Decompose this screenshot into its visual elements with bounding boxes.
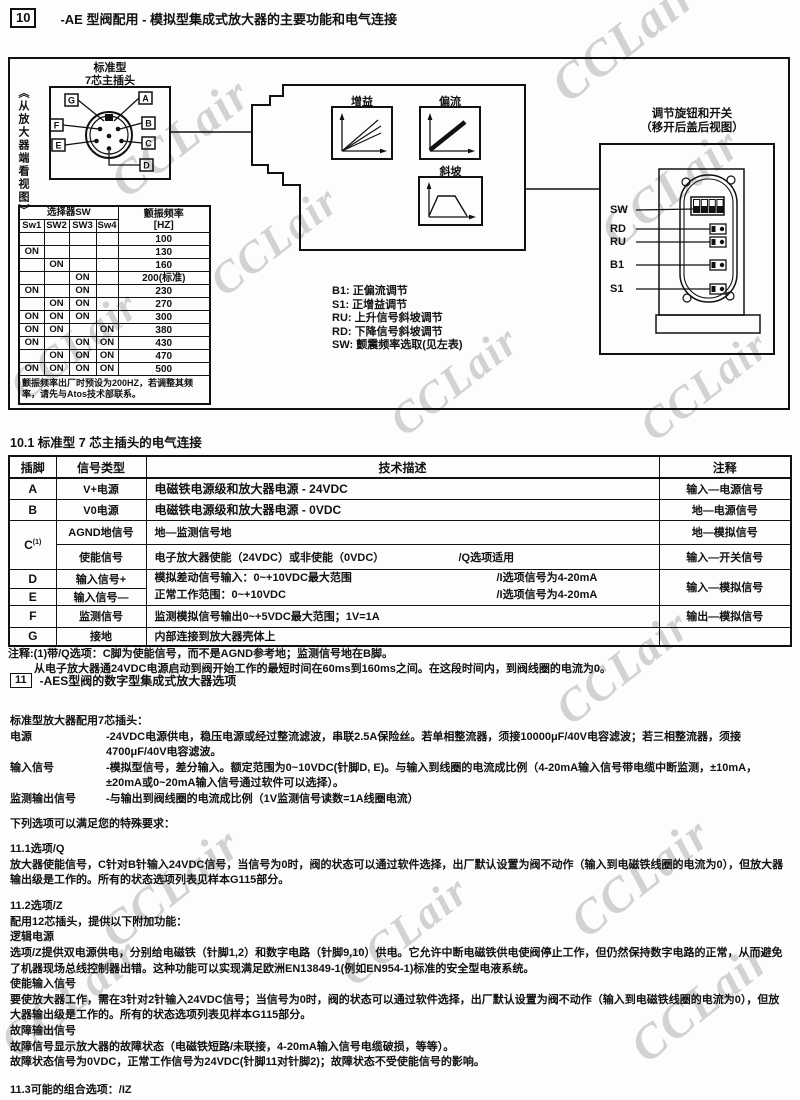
pin-label: D — [143, 161, 150, 171]
legend-line: SW: 颤震频率选取(见左表) — [332, 339, 463, 353]
screw — [683, 294, 691, 302]
logic-supply-title: 逻辑电源 — [10, 930, 790, 946]
option-z-heading: 11.2选项/Z — [10, 899, 790, 915]
table-row: 100 — [19, 233, 210, 246]
section-number-box: 10 — [10, 8, 36, 28]
spec-row: 电源 -24VDC电源供电，稳压电源或经过整流滤波，串联2.5A保险丝。若单相整… — [10, 730, 790, 761]
table-row: ON160 — [19, 259, 210, 272]
functional-diagram: G F E A B C D — [8, 57, 790, 410]
fault-output-body: 故障信号显示放大器的故障状态（电磁铁短路/未联接，4-20mA输入信号电缆破损，… — [10, 1040, 790, 1056]
gain-graph-label: 增益 — [332, 93, 392, 109]
pin-label: G — [68, 96, 75, 106]
table-row: A V+电源 电磁铁电源级和放大器电源 - 24VDC 输入—电源信号 — [9, 478, 791, 499]
option-q-heading: 11.1选项/Q — [10, 842, 790, 858]
connector-key-notch — [105, 114, 113, 121]
table-row: ONONON380 — [19, 324, 210, 337]
enable-input-body: 要使放大器工作，需在3针对2针输入24VDC信号；当信号为0时，阀的状态可以通过… — [10, 993, 790, 1024]
option-q-body: 放大器使能信号，C针对B针输入24VDC信号，当信号为0时，阀的状态可以通过软件… — [10, 858, 790, 889]
bias-graph-label: 偏流 — [420, 93, 480, 109]
adjustment-legend: B1: 正偏流调节 S1: 正增益调节 RU: 上升信号斜坡调节 RD: 下降信… — [332, 285, 463, 353]
table-row: F 监测信号 监测模拟信号输出0~+5VDC最大范围；1V=1A 输出—模拟信号 — [9, 605, 791, 627]
table-row: ON130 — [19, 246, 210, 259]
view-direction-label: 《从放大器端看视图》 — [15, 87, 31, 217]
section-10-header: 10 -AE 型阀配用 - 模拟型集成式放大器的主要功能和电气连接 — [10, 8, 397, 28]
label-pointer-lines — [636, 209, 710, 289]
fault-output-title: 故障输出信号 — [10, 1024, 790, 1040]
knob-label-rd: RD — [610, 223, 636, 235]
table-row: ONON270 — [19, 298, 210, 311]
legend-line: RU: 上升信号斜坡调节 — [332, 312, 463, 326]
section-11-header: 11 -AES型阀的数字型集成式放大器选项 — [10, 672, 236, 689]
knob-panel-title: 调节旋钮和开关 （移开后盖后视图） — [606, 107, 778, 136]
table-row: B V0电源 电磁铁电源级和放大器电源 - 0VDC 地—电源信号 — [9, 499, 791, 520]
table-row: G 接地 内部连接到放大器壳体上 — [9, 627, 791, 646]
gain-graph — [332, 107, 392, 159]
table-row: ONONONON500 — [19, 363, 210, 376]
table-row: ON200(标准) — [19, 272, 210, 285]
spec-row: 输入信号 -模拟型信号，差分输入。额定范围为0~10VDC(针脚D, E)。与输… — [10, 761, 790, 792]
frequency-header: 颤振频率 [HZ] — [118, 206, 210, 233]
options-intro: 下列选项可以满足您的特殊要求： — [10, 817, 790, 833]
option-z-intro: 配用12芯插头，提供以下附加功能： — [10, 915, 790, 931]
plug-label: 标准型 7芯主插头 — [50, 62, 170, 88]
intro-line: 标准型放大器配用7芯插头： — [10, 714, 790, 730]
connector-pin-dots — [94, 127, 124, 151]
trimmers — [710, 224, 726, 294]
table-header-row: 插脚 信号类型 技术描述 注释 — [9, 456, 791, 478]
document-page: CCLair CCLair CCLair CCLair CCLair CCLai… — [0, 0, 800, 1100]
section-title: -AES型阀的数字型集成式放大器选项 — [40, 672, 237, 689]
bias-graph — [420, 107, 480, 159]
knob-panel-drawing — [600, 144, 774, 354]
pin-label: B — [145, 119, 152, 129]
legend-line: B1: 正偏流调节 — [332, 285, 463, 299]
spec-row: 监测输出信号 -与输出到阀线圈的电流成比例（1V监测信号读数=1A线圈电流） — [10, 792, 790, 808]
knob-label-sw: SW — [610, 204, 636, 216]
table-row: ONONON300 — [19, 311, 210, 324]
ramp-graph — [419, 177, 482, 225]
table-row: ONON230 — [19, 285, 210, 298]
amplifier-body-outline — [252, 85, 525, 250]
section-title: -AE 型阀配用 - 模拟型集成式放大器的主要功能和电气连接 — [60, 9, 397, 28]
dither-frequency-table: 选择器SW 颤振频率 [HZ] Sw1 SW2 SW3 Sw4 100 ON13… — [18, 205, 211, 405]
table-row: ONONON430 — [19, 337, 210, 350]
pin-label: C — [145, 139, 152, 149]
table-row: 使能信号 电子放大器使能（24VDC）或非使能（0VDC）/Q选项适用 输入—开… — [9, 544, 791, 569]
pin-label: E — [55, 141, 61, 151]
section-10-1-title: 10.1 标准型 7 芯主插头的电气连接 — [10, 432, 202, 451]
legend-line: S1: 正增益调节 — [332, 299, 463, 313]
enable-input-title: 使能输入信号 — [10, 977, 790, 993]
legend-line: RD: 下降信号斜坡调节 — [332, 326, 463, 340]
pin-letter-boxes — [50, 92, 155, 171]
combo-options-line: 11.3可能的组合选项：/IZ — [10, 1083, 790, 1099]
sw-table-note: 颤振频率出厂时预设为200HZ，若调整其频率，请先与Atos技术部联系。 — [19, 376, 210, 404]
section-11-body: 标准型放大器配用7芯插头： 电源 -24VDC电源供电，稳压电源或经过整流滤波，… — [10, 714, 790, 1098]
logic-supply-body: 选项/Z提供双电源供电，分别给电磁铁（针脚1,2）和数字电路（针脚9,10）供电… — [10, 946, 790, 977]
pin-label: A — [142, 94, 149, 104]
knob-label-ru: RU — [610, 236, 636, 248]
sw-group-header: 选择器SW — [19, 206, 118, 220]
section-number-box: 11 — [10, 673, 32, 689]
table-row: C(1) AGND地信号 地—监测信号地 地—模拟信号 — [9, 520, 791, 544]
table-row: ONONON470 — [19, 350, 210, 363]
knob-label-s1: S1 — [610, 283, 636, 295]
pin-connections-table: 插脚 信号类型 技术描述 注释 A V+电源 电磁铁电源级和放大器电源 - 24… — [8, 455, 792, 647]
knob-label-b1: B1 — [610, 259, 636, 271]
ramp-graph-label: 斜坡 — [419, 163, 482, 179]
screw — [727, 176, 735, 184]
table-row: D 输入信号+ 模拟差动信号输入：0~+10VDC最大范围/I选项信号为4-20… — [9, 569, 791, 588]
pin-label: F — [54, 121, 60, 131]
fault-output-body: 故障状态信号为0VDC，正常工作信号为24VDC(针脚11对针脚2)；故障状态不… — [10, 1055, 790, 1071]
footnote-line: 注释:(1)带/Q选项：C脚为使能信号，而不是AGND参考地；监测信号地在B脚。 — [8, 647, 611, 662]
